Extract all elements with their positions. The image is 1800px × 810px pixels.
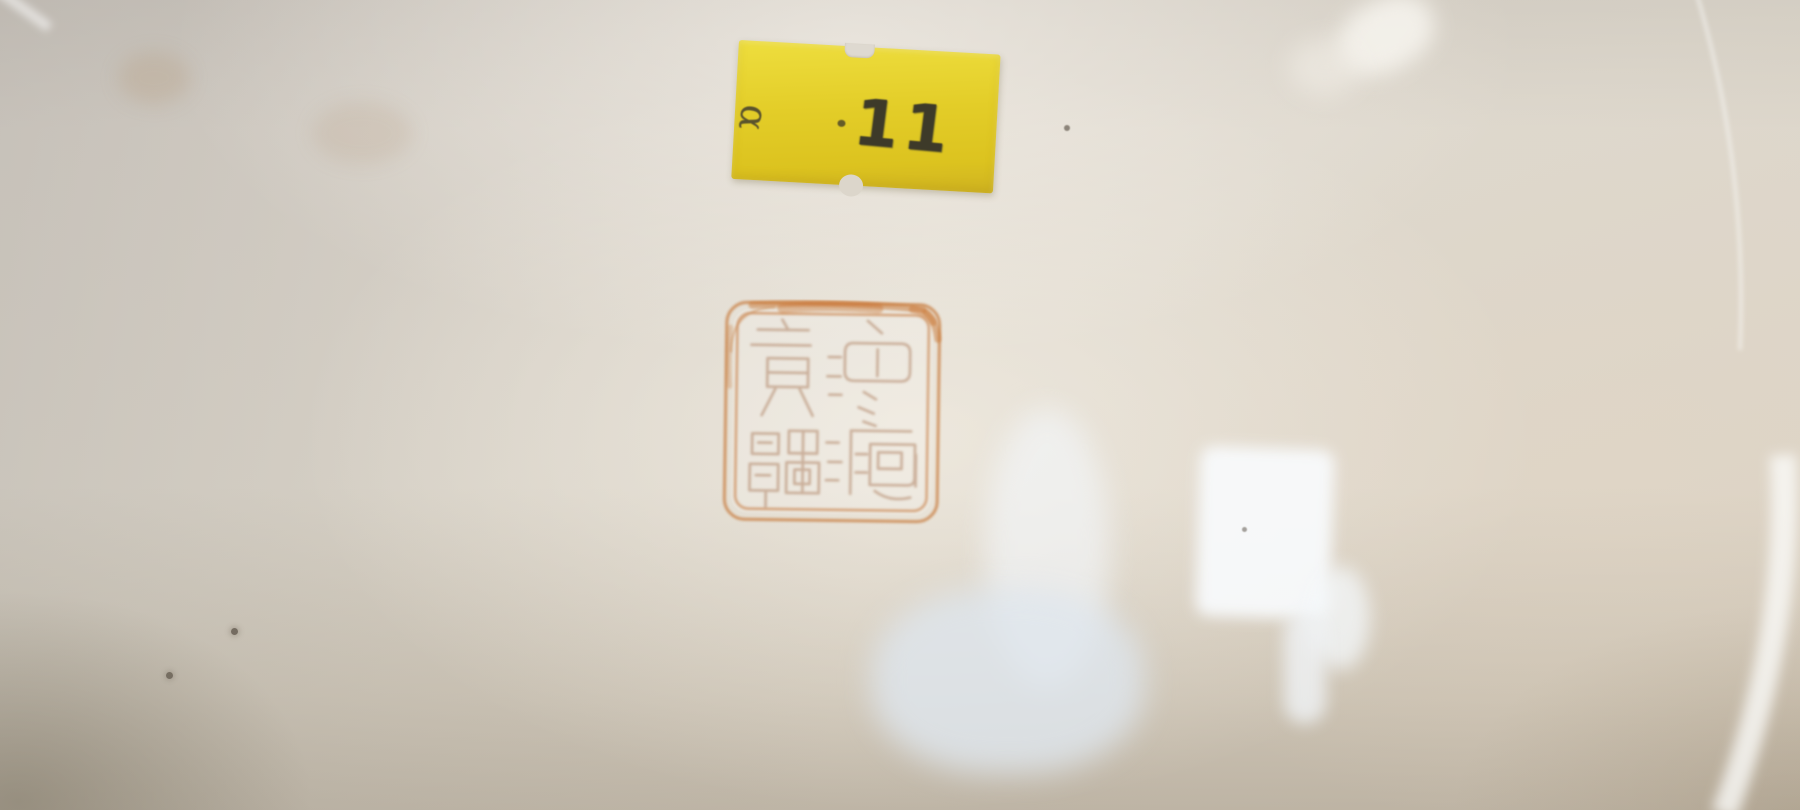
glaze-highlight: [1325, 0, 1446, 89]
porcelain-dish-photo: α 11: [0, 0, 1800, 810]
sticker-code-letter: α: [733, 102, 775, 134]
glaze-speck: [166, 672, 173, 679]
glaze-speck: [1242, 527, 1247, 532]
glaze-speck: [231, 628, 238, 635]
lot-sticker: α 11: [731, 40, 1000, 193]
seal-mark: [720, 298, 943, 525]
glaze-stain: [312, 102, 412, 164]
sticker-ink-dot: [837, 120, 845, 127]
glaze-speck: [1064, 125, 1070, 131]
glaze-highlight: [872, 588, 1144, 773]
sticker-bottom-notch: [838, 174, 863, 197]
glaze-highlight: [1195, 446, 1335, 621]
glaze-highlight: [1310, 566, 1370, 670]
glaze-highlight: [0, 0, 52, 32]
glaze-highlight: [985, 408, 1110, 688]
glaze-highlight: [1288, 38, 1362, 96]
sticker-top-notch: [844, 43, 875, 59]
glaze-highlight: [1284, 612, 1326, 724]
glaze-stain: [118, 52, 190, 104]
sticker-lot-number: 11: [851, 91, 958, 164]
